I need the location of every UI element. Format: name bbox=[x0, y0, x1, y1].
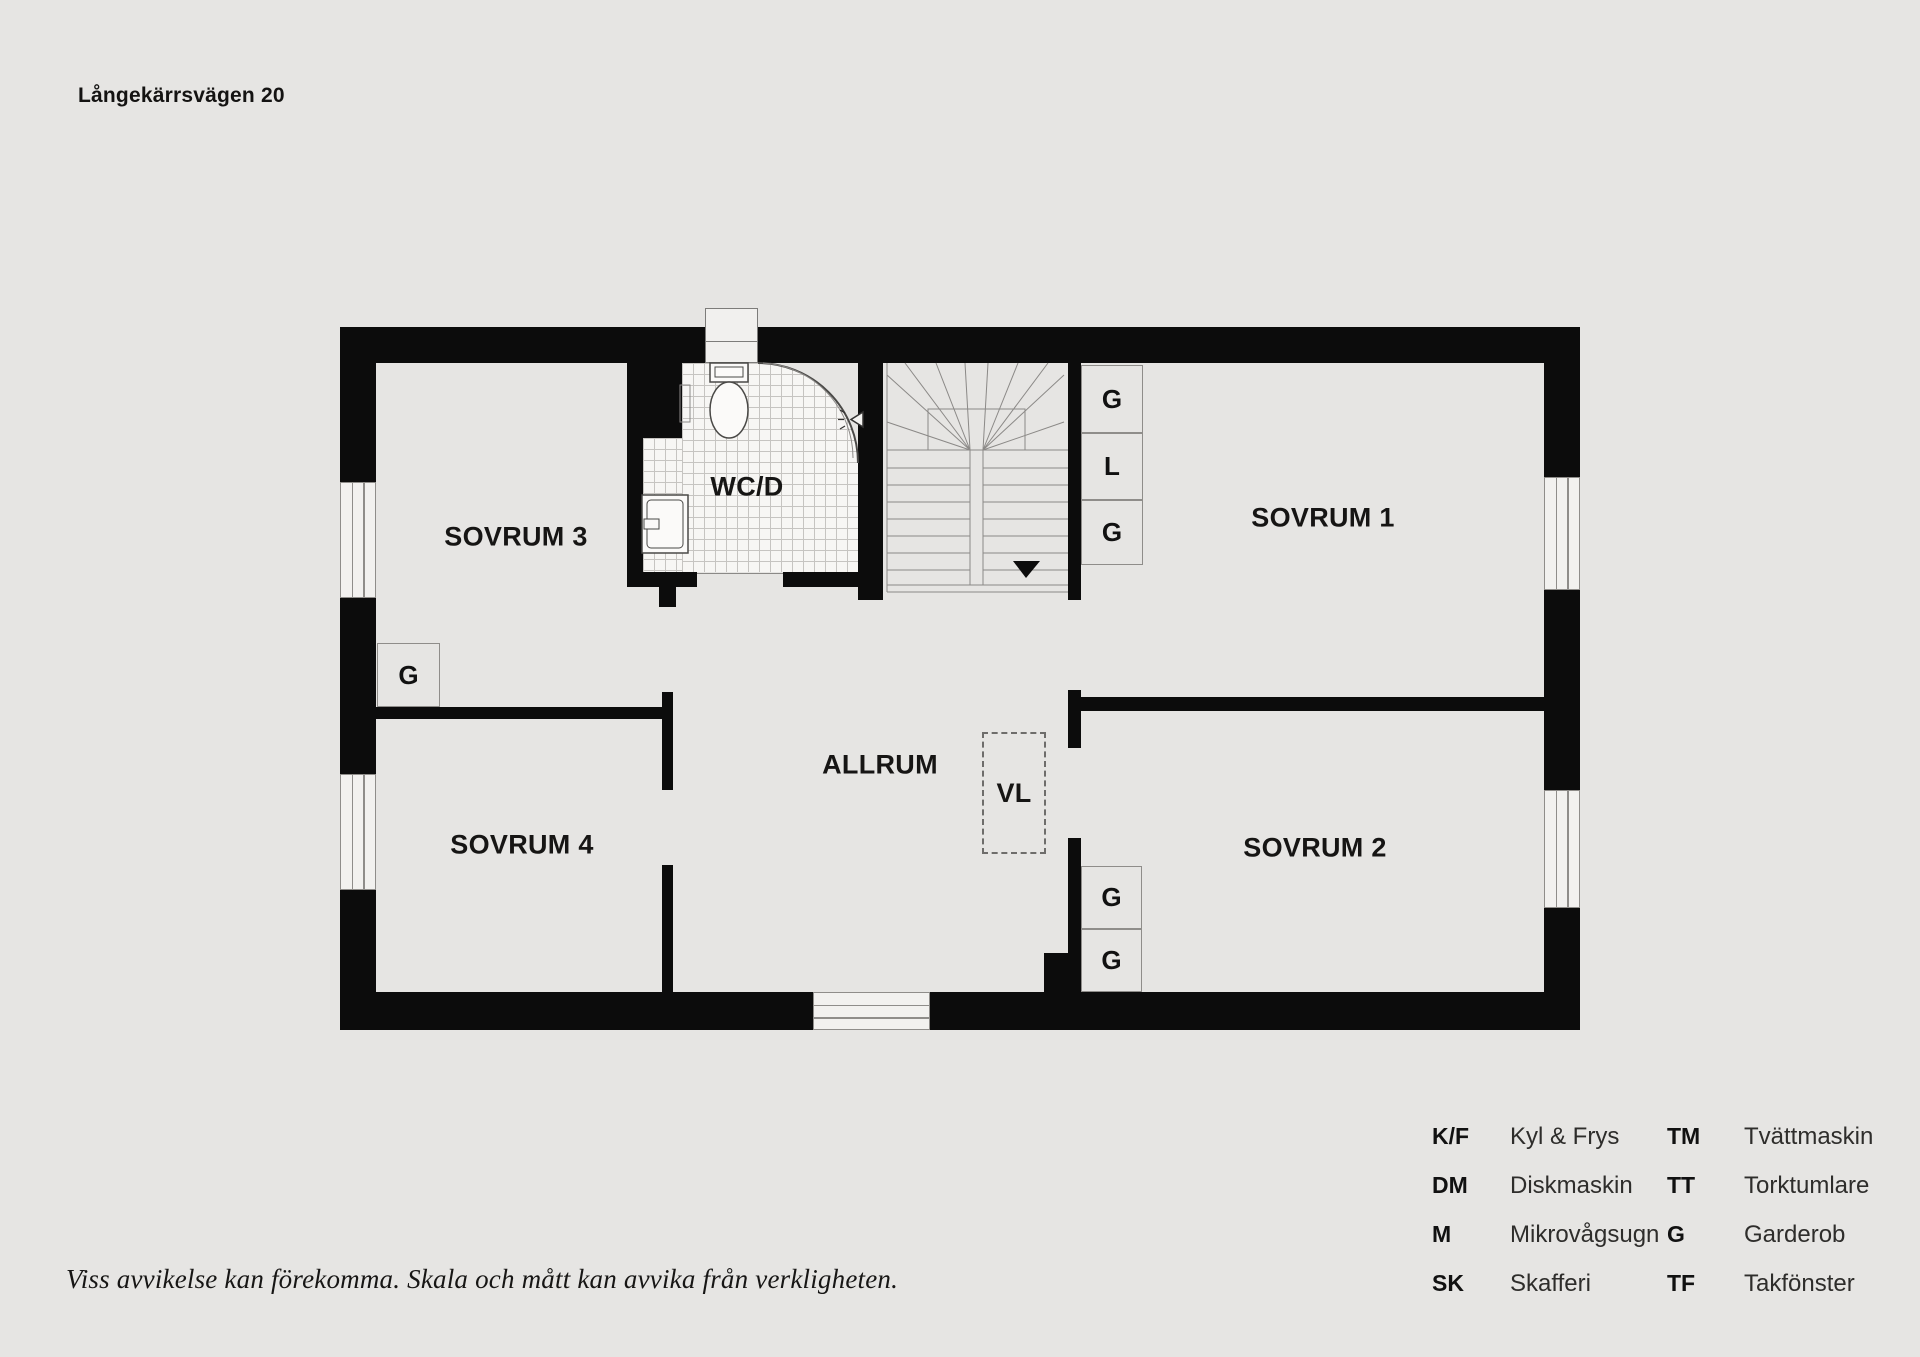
legend-abbr: K/F bbox=[1432, 1123, 1510, 1150]
floor-plan: G L G G G G VL SOVRUM 3 WC/D SOVRUM 1 SO… bbox=[340, 327, 1580, 1030]
legend-abbr: TF bbox=[1667, 1270, 1744, 1297]
wall-wcd-stair bbox=[858, 363, 883, 600]
staircase-symbol bbox=[887, 363, 1068, 592]
wall-sovrum4-allrum-upper bbox=[662, 692, 673, 790]
wcd-tile-floor-ext bbox=[643, 438, 682, 572]
wcd-door-threshold bbox=[697, 573, 783, 574]
closet-stair-top: G bbox=[1081, 365, 1143, 433]
legend-name: Skafferi bbox=[1510, 1270, 1667, 1298]
disclaimer: Viss avvikelse kan förekomma. Skala och … bbox=[66, 1264, 898, 1295]
closet-label: G bbox=[1101, 882, 1121, 913]
legend-abbr: G bbox=[1667, 1221, 1744, 1248]
legend-name: Torktumlare bbox=[1744, 1172, 1902, 1200]
closet-stair-mid: L bbox=[1081, 433, 1143, 500]
wall-sovrum1-door-jamb bbox=[1068, 690, 1081, 748]
page-title: Långekärrsvägen 20 bbox=[78, 84, 285, 108]
wall-sovrum3-door-jamb bbox=[659, 587, 676, 607]
closet-label: L bbox=[1104, 451, 1120, 482]
legend-name: Diskmaskin bbox=[1510, 1172, 1667, 1200]
legend-name: Tvättmaskin bbox=[1744, 1123, 1902, 1151]
legend-abbr: TT bbox=[1667, 1172, 1744, 1199]
legend-name: Mikrovågsugn bbox=[1510, 1221, 1667, 1249]
window-right-bottom bbox=[1544, 790, 1580, 908]
room-label-sovrum3: SOVRUM 3 bbox=[444, 522, 587, 553]
wall-wcd-bottom-right bbox=[783, 572, 858, 587]
room-label-allrum: ALLRUM bbox=[822, 750, 938, 781]
closet-label: G bbox=[398, 660, 418, 691]
wall-sovrum1-sovrum2 bbox=[1081, 697, 1544, 711]
legend-abbr: M bbox=[1432, 1221, 1510, 1248]
wall-corner-jog bbox=[1044, 953, 1081, 992]
closet-label: G bbox=[1101, 945, 1121, 976]
legend-abbr: SK bbox=[1432, 1270, 1510, 1297]
closet-sovrum3: G bbox=[377, 643, 440, 707]
legend-abbr: TM bbox=[1667, 1123, 1744, 1150]
room-label-wcd: WC/D bbox=[710, 472, 783, 503]
legend-name: Kyl & Frys bbox=[1510, 1123, 1667, 1151]
wall-top bbox=[340, 327, 1580, 363]
closet-stair-bottom: G bbox=[1081, 500, 1143, 565]
plan-symbols-layer bbox=[340, 327, 1580, 1030]
legend-name: Takfönster bbox=[1744, 1270, 1902, 1298]
closet-label: G bbox=[1102, 517, 1122, 548]
wcd-tile-floor bbox=[682, 363, 858, 572]
closet-sovrum2-top: G bbox=[1081, 866, 1142, 929]
wall-left bbox=[340, 327, 376, 1030]
room-label-sovrum4: SOVRUM 4 bbox=[450, 830, 593, 861]
wall-sovrum4-allrum-lower bbox=[662, 865, 673, 992]
window-left-bottom bbox=[340, 774, 376, 890]
wall-right bbox=[1544, 327, 1580, 1030]
window-left-top bbox=[340, 482, 376, 598]
room-label-vl: VL bbox=[996, 778, 1031, 809]
legend-abbr: DM bbox=[1432, 1172, 1510, 1199]
vl-hatch: VL bbox=[982, 732, 1046, 854]
closet-label: G bbox=[1102, 384, 1122, 415]
wall-bottom bbox=[340, 992, 1580, 1030]
roof-shaft bbox=[705, 308, 758, 363]
window-bottom-center bbox=[813, 992, 930, 1030]
legend: K/F Kyl & Frys TM Tvättmaskin DM Diskmas… bbox=[1432, 1112, 1902, 1308]
wall-wcd-bottom-left bbox=[627, 572, 697, 587]
stair-down-arrow-icon bbox=[1013, 561, 1040, 578]
wall-wcd-left-upper bbox=[627, 363, 682, 438]
room-label-sovrum1: SOVRUM 1 bbox=[1251, 503, 1394, 534]
wall-stair-right bbox=[1068, 363, 1081, 600]
wall-sovrum3-sovrum4 bbox=[376, 707, 672, 719]
closet-sovrum2-bottom: G bbox=[1081, 929, 1142, 992]
room-label-sovrum2: SOVRUM 2 bbox=[1243, 833, 1386, 864]
legend-name: Garderob bbox=[1744, 1221, 1902, 1249]
wall-wcd-left-lower bbox=[627, 438, 643, 572]
window-right-top bbox=[1544, 477, 1580, 590]
